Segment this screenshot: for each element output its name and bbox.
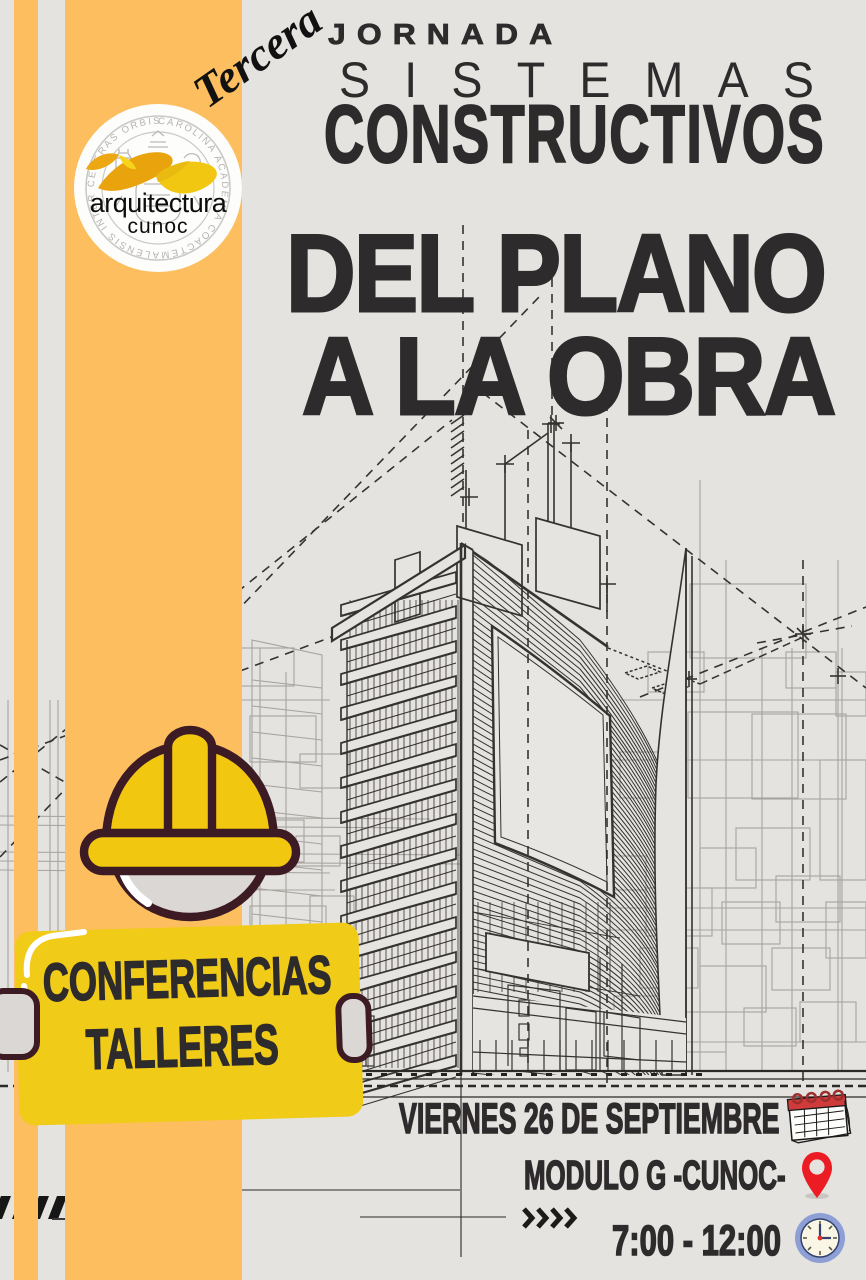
svg-text:arquitectura: arquitectura [90,188,228,218]
svg-text:cunoc: cunoc [127,215,188,238]
